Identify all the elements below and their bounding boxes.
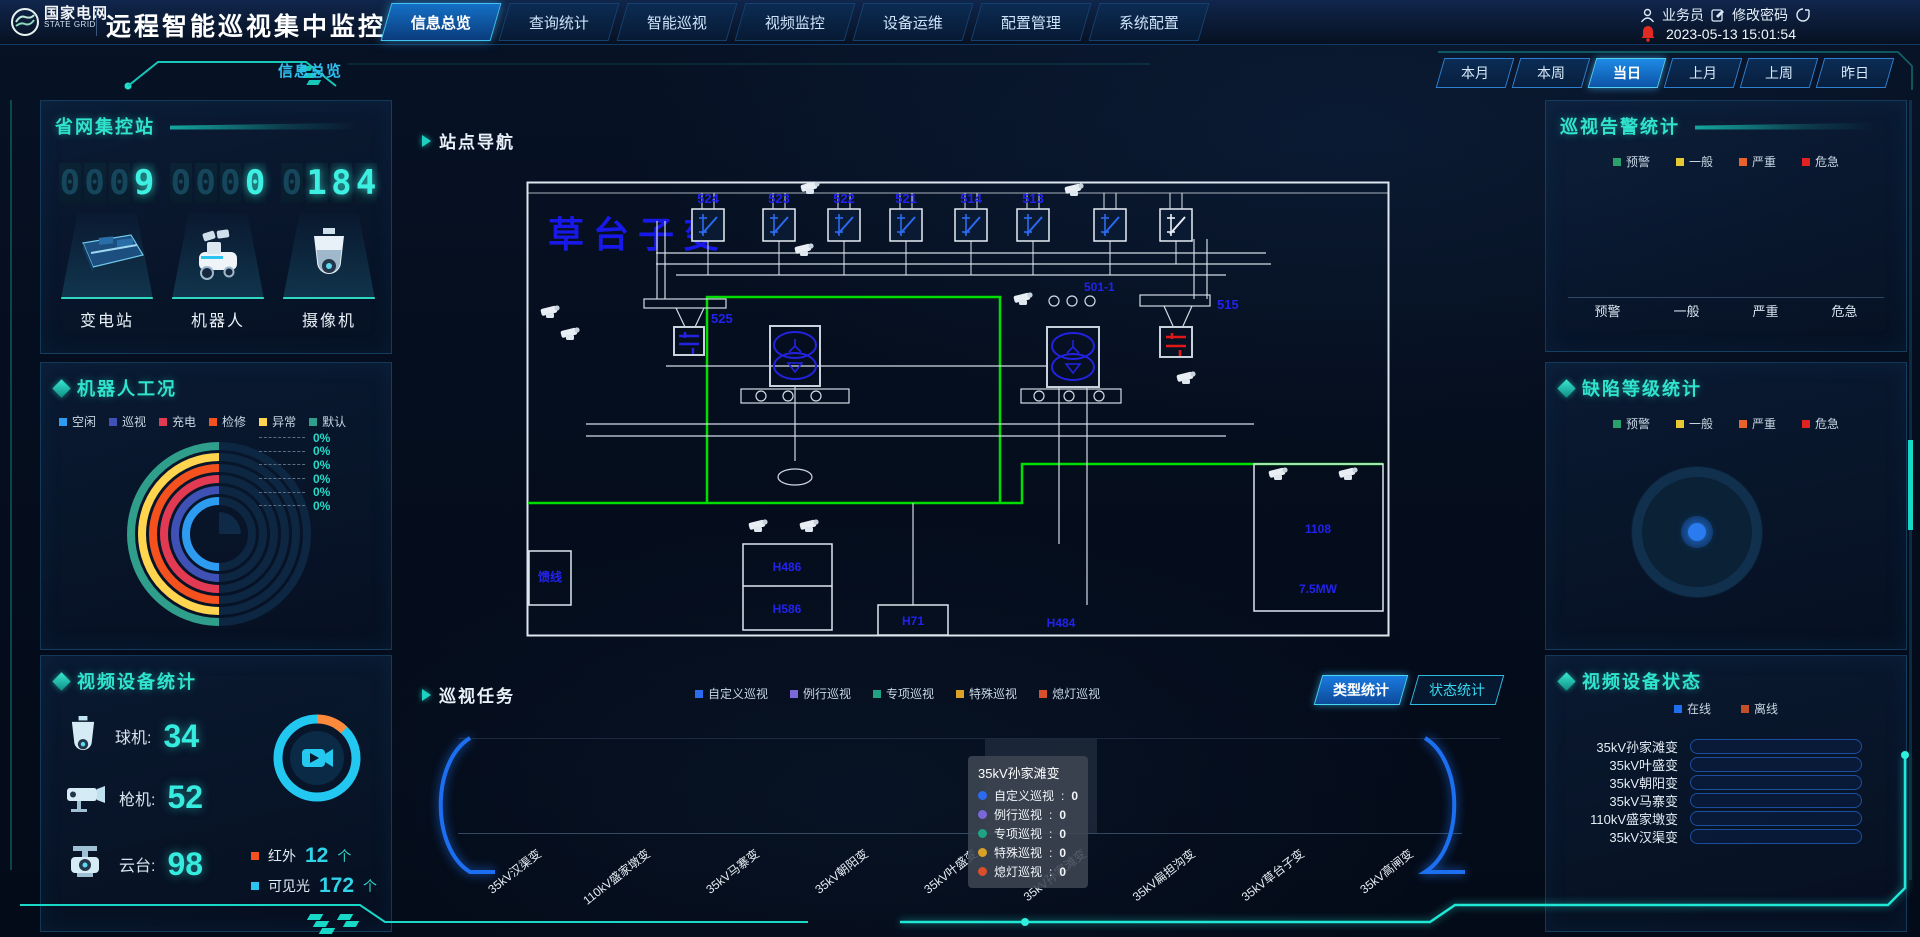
bay-label: 521	[895, 191, 917, 206]
brand-divider	[96, 8, 97, 36]
legend-item[interactable]: 默认	[309, 413, 346, 430]
tab-video-monitor[interactable]: 视频监控	[735, 3, 856, 41]
counter-digits: 0000	[170, 163, 266, 203]
ptz-count: 98	[167, 846, 203, 883]
panel-title: 视频设备状态	[1582, 668, 1702, 694]
tab-system-config[interactable]: 系统配置	[1089, 3, 1210, 41]
counter-digits: 0009	[59, 163, 155, 203]
camera-pedestal	[283, 213, 375, 299]
legend-item[interactable]: 预警	[1613, 153, 1650, 170]
counter-robot: 0000 机器人	[170, 163, 266, 331]
logout-icon[interactable]	[1795, 7, 1811, 23]
tab-smart-patrol[interactable]: 智能巡视	[617, 3, 738, 41]
legend-item[interactable]: 特殊巡视	[956, 685, 1017, 702]
status-bar-row: 35kV汉渠变	[1556, 829, 1862, 843]
panel-alarm-stats: 巡视告警统计 预警 一般 严重 危急 预警 一般 严重 危急	[1545, 100, 1907, 352]
panel-title: 巡视告警统计	[1560, 113, 1680, 139]
filter-this-month[interactable]: 本月	[1436, 58, 1515, 88]
defect-pie-chart	[1624, 459, 1770, 605]
patrol-tasks-title: 巡视任务	[422, 682, 515, 707]
tab-info-overview[interactable]: 信息总览	[381, 3, 502, 41]
status-bar-row: 35kV马寨变	[1556, 793, 1862, 807]
brand-text: 国家电网 STATE GRID	[44, 6, 108, 29]
panel-title: 视频设备统计	[77, 668, 197, 694]
counter-label: 变电站	[59, 307, 155, 331]
title-decor-line	[170, 123, 377, 130]
tab-device-ops[interactable]: 设备运维	[853, 3, 974, 41]
main-nav: 信息总览 查询统计 智能巡视 视频监控 设备运维 配置管理 系统配置	[386, 3, 1212, 41]
diamond-icon	[52, 672, 70, 690]
robot-legend: 空闲 巡视 充电 检修 异常 默认	[59, 413, 346, 430]
state-grid-logo-icon	[10, 7, 40, 37]
legend-item[interactable]: 危急	[1802, 153, 1839, 170]
panel-title: 省网集控站	[55, 113, 155, 139]
robot-pedestal	[172, 213, 264, 299]
spectrum-visible: 可见光 172 个	[251, 874, 377, 898]
visible-count: 172	[319, 874, 354, 898]
edit-password-icon	[1711, 8, 1725, 22]
transformer-1	[770, 326, 820, 386]
chevron-right-icon	[422, 135, 431, 147]
diamond-icon	[52, 379, 70, 397]
switch-bay-row: 524 523 522 521 514 513	[692, 191, 1192, 275]
counter-substation: 0009 变电站	[59, 163, 155, 331]
panel-grid-stations: 省网集控站 0009 变电站 0000	[40, 100, 392, 354]
panel-device-status: 视频设备状态 在线 离线 35kV孙家滩变 35kV叶盛变 35kV朝阳变 35…	[1545, 655, 1907, 932]
dashboard-root: 国家电网 STATE GRID 远程智能巡视集中监控系统 信息总览 查询统计 智…	[0, 0, 1920, 937]
spectrum-infrared: 红外 12 个	[251, 844, 351, 868]
label-75mw: 7.5MW	[1299, 582, 1338, 596]
alarm-legend: 预警 一般 严重 危急	[1546, 153, 1906, 170]
bay-label: 522	[833, 191, 855, 206]
tooltip-title: 35kV孙家滩变	[978, 763, 1078, 782]
dome-camera-icon	[302, 226, 356, 284]
transformer-2	[1047, 327, 1099, 387]
legend-item[interactable]: 自定义巡视	[695, 685, 768, 702]
patrol-view-buttons: 类型统计 状态统计	[1318, 675, 1500, 705]
datetime-area: 2023-05-13 15:01:54	[1640, 25, 1796, 42]
infrared-count: 12	[305, 844, 328, 868]
status-legend: 在线 离线	[1546, 700, 1906, 717]
legend-item[interactable]: 在线	[1674, 700, 1711, 717]
legend-item[interactable]: 一般	[1676, 153, 1713, 170]
type-stats-button[interactable]: 类型统计	[1314, 675, 1409, 705]
dome-camera-icon	[63, 714, 103, 758]
robot-zero-labels: 0% 0% 0% 0% 0% 0%	[259, 431, 330, 513]
panel-robot-condition: 机器人工况 空闲 巡视 充电 检修 异常 默认 0%	[40, 362, 392, 650]
panel-video-stats: 视频设备统计 球机: 34 枪机: 52 云台: 98	[40, 655, 392, 932]
patrol-legend: 自定义巡视 例行巡视 专项巡视 特殊巡视 熄灯巡视	[695, 685, 1100, 702]
label-h71: H71	[902, 614, 924, 628]
bay-label: 524	[697, 191, 719, 206]
brand-en: STATE GRID	[44, 21, 108, 29]
change-password[interactable]: 修改密码	[1732, 5, 1788, 25]
legend-item[interactable]: 严重	[1739, 153, 1776, 170]
tab-query-stats[interactable]: 查询统计	[499, 3, 620, 41]
filter-yesterday[interactable]: 昨日	[1816, 58, 1895, 88]
bay-label: 523	[768, 191, 790, 206]
status-bar-row: 110kV盛家墩变	[1556, 811, 1862, 825]
breaker-525: 525	[674, 311, 733, 355]
legend-item[interactable]: 离线	[1741, 700, 1778, 717]
counter-digits: 0184	[281, 163, 377, 203]
bay-label: 513	[1022, 191, 1044, 206]
user-icon	[1640, 8, 1655, 23]
legend-item[interactable]: 巡视	[109, 413, 146, 430]
legend-item[interactable]: 空闲	[59, 413, 96, 430]
scrollbar-handle[interactable]	[1908, 440, 1913, 530]
breadcrumb: 信息总览	[278, 60, 342, 81]
diamond-icon	[1557, 672, 1575, 690]
device-row-dome: 球机: 34	[63, 714, 199, 758]
device-row-bullet: 枪机: 52	[63, 779, 203, 816]
legend-item[interactable]: 熄灯巡视	[1039, 685, 1100, 702]
counter-label: 机器人	[170, 307, 266, 331]
site-nav-title: 站点导航	[422, 128, 515, 153]
filter-last-week[interactable]: 上周	[1740, 58, 1819, 88]
legend-item[interactable]: 充电	[159, 413, 196, 430]
label-515: 515	[1217, 297, 1239, 312]
user-area: 业务员 修改密码	[1640, 5, 1811, 25]
filter-today[interactable]: 当日	[1588, 58, 1667, 88]
diamond-icon	[1557, 379, 1575, 397]
legend-item[interactable]: 严重	[1739, 415, 1776, 432]
ptz-camera-icon	[63, 844, 107, 884]
bullet-count: 52	[167, 779, 203, 816]
status-stats-button[interactable]: 状态统计	[1410, 675, 1505, 705]
bay-label: 514	[960, 191, 982, 206]
title-decor-line	[1695, 123, 1892, 130]
robot-icon	[187, 226, 249, 284]
dome-count: 34	[163, 718, 199, 755]
filter-this-week[interactable]: 本周	[1512, 58, 1591, 88]
tab-config-mgmt[interactable]: 配置管理	[971, 3, 1092, 41]
panel-title: 缺陷等级统计	[1582, 375, 1702, 401]
chart-tooltip: 35kV孙家滩变 自定义巡视: 0 例行巡视: 0 专项巡视: 0 特殊巡视: …	[968, 756, 1088, 888]
panel-title: 机器人工况	[77, 375, 177, 401]
label-501-1: 501-1	[1084, 280, 1115, 294]
sub-bar: 信息总览 本月 本周 当日 上月 上周 昨日	[0, 44, 1920, 94]
substation-diagram[interactable]: 草台子变	[526, 181, 1390, 637]
filter-last-month[interactable]: 上月	[1664, 58, 1743, 88]
legend-item[interactable]: 检修	[209, 413, 246, 430]
legend-item[interactable]: 异常	[259, 413, 296, 430]
counter-label: 摄像机	[281, 307, 377, 331]
user-name[interactable]: 业务员	[1662, 5, 1704, 25]
panel-defect-stats: 缺陷等级统计 预警 一般 严重 危急	[1545, 362, 1907, 650]
substation-pedestal	[61, 213, 153, 299]
label-525: 525	[711, 311, 733, 326]
device-row-ptz: 云台: 98	[63, 844, 203, 884]
status-bar-row: 35kV朝阳变	[1556, 775, 1862, 789]
alarm-axis-labels: 预警 一般 严重 危急	[1568, 301, 1884, 320]
label-h486: H486	[773, 560, 802, 574]
alarm-bell-icon[interactable]	[1640, 25, 1656, 42]
label-h484: H484	[1047, 616, 1076, 630]
top-bar: 国家电网 STATE GRID 远程智能巡视集中监控系统 信息总览 查询统计 智…	[0, 0, 1920, 45]
label-feeder: 馈线	[538, 569, 562, 584]
video-donut-chart	[269, 710, 365, 806]
status-bar-row: 35kV叶盛变	[1556, 757, 1862, 771]
counter-camera: 0184 摄像机	[281, 163, 377, 331]
legend-item[interactable]: 危急	[1802, 415, 1839, 432]
status-bar-row: 35kV孙家滩变	[1556, 739, 1862, 753]
bullet-camera-icon	[63, 780, 107, 816]
time-filters: 本月 本周 当日 上月 上周 昨日	[1440, 58, 1890, 88]
legend-item[interactable]: 预警	[1613, 415, 1650, 432]
defect-legend: 预警 一般 严重 危急	[1546, 415, 1906, 432]
legend-item[interactable]: 一般	[1676, 415, 1713, 432]
brand-cn: 国家电网	[44, 6, 108, 21]
chevron-right-icon	[422, 689, 431, 701]
label-h586: H586	[773, 602, 802, 616]
label-1108: 1108	[1305, 522, 1331, 536]
legend-item[interactable]: 例行巡视	[790, 685, 851, 702]
current-datetime: 2023-05-13 15:01:54	[1666, 26, 1796, 42]
substation-icon	[69, 229, 145, 281]
alarm-axis-line	[1568, 297, 1884, 298]
feeder-boxes	[529, 464, 1383, 635]
legend-item[interactable]: 专项巡视	[873, 685, 934, 702]
